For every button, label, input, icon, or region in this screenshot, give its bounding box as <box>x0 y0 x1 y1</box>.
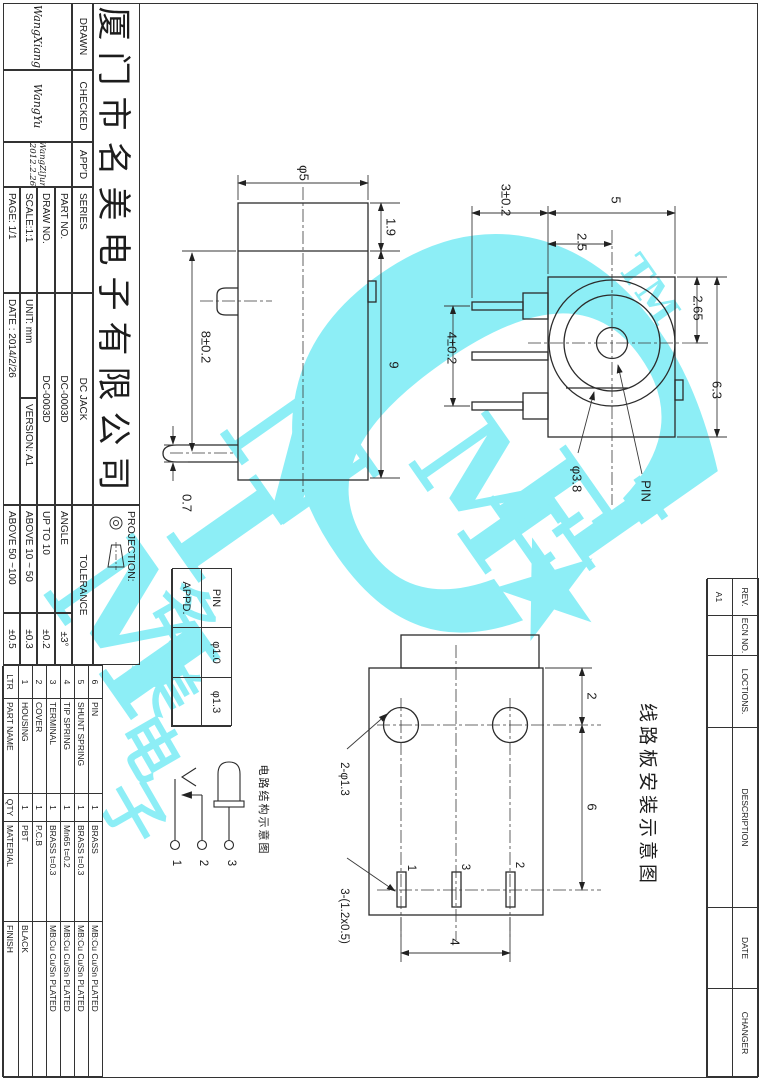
dim-6.3-label: 6.3 <box>710 381 725 399</box>
appd-signature-name: WangZiJun <box>38 142 48 187</box>
appd-row-cell <box>171 628 201 678</box>
description-label: DESCRIPTION <box>732 728 758 908</box>
part-ltr: 2 <box>32 666 46 699</box>
tolerance-value: ±3° <box>55 613 72 665</box>
dim-5-label: 5 <box>609 196 624 203</box>
slots-callout-label: 3-(1.2x0.5) <box>338 888 350 944</box>
date-label: DATE <box>732 908 758 989</box>
part-qty: 1 <box>32 794 46 822</box>
projection-cell: PROJECTION: <box>93 505 140 665</box>
parts-header-finish: FINISH <box>2 922 18 1077</box>
tolerance-range: ABOVE 10 ~ 50 <box>20 505 37 613</box>
pin-spec-table: PIN φ1.0 φ1.3 APPD. <box>172 568 232 726</box>
parts-header-name: PART NAME <box>2 699 18 794</box>
terminal-2-number: 2 <box>197 860 209 866</box>
part-qty: 1 <box>74 794 88 822</box>
appd-label: APP'D <box>72 142 93 187</box>
dim-2-label: 2 <box>585 692 600 699</box>
part-qty: 1 <box>18 794 32 822</box>
part-name: PIN <box>88 699 102 794</box>
terminal-1-number: 1 <box>170 860 182 866</box>
draw-no-label: DRAW NO. <box>37 187 55 293</box>
locations-label: LOCTIONS. <box>732 656 758 728</box>
parts-header-ltr: LTR <box>2 666 18 699</box>
locations-value <box>706 656 732 728</box>
dim-2.65-label: 2.65 <box>691 295 706 320</box>
part-ltr: 5 <box>74 666 88 699</box>
description-value <box>706 728 732 908</box>
rev-label: REV. <box>732 579 758 616</box>
appd-signature: WangZiJun 2012.2.26 <box>3 142 72 187</box>
circuit-schematic <box>171 762 245 850</box>
part-finish: MB:Cu Cu/Sn PLATED <box>60 922 74 1077</box>
dim-1.9-label: 1.9 <box>384 218 399 236</box>
side-view <box>163 203 376 480</box>
appd-row-cell <box>171 678 201 727</box>
pcb-view-centerlines <box>377 645 601 940</box>
part-name: TERMINAL <box>46 699 60 794</box>
side-view-centerlines <box>170 187 303 492</box>
parts-header-material: MATERIAL <box>2 822 18 922</box>
pin-spec-value: φ1.0 <box>201 628 231 678</box>
first-angle-projection-icon <box>107 511 125 575</box>
part-ltr: 4 <box>60 666 74 699</box>
checked-signature: WangYu <box>3 70 72 142</box>
company-name: 厦门市名美电子有限公司 <box>93 3 140 505</box>
part-qty: 1 <box>88 794 102 822</box>
part-name: COVER <box>32 699 46 794</box>
part-material: Mn65 t=0.2 <box>60 822 74 922</box>
changer-label: CHANGER <box>732 989 758 1078</box>
tolerance-header: TOLERANCE <box>72 505 93 665</box>
drawn-signature: WangXiang <box>3 3 72 70</box>
part-qty: 1 <box>46 794 60 822</box>
part-name: HOUSING <box>18 699 32 794</box>
part-no-label: PART NO. <box>55 187 72 293</box>
part-finish: MB:Cu Cu/Sn PLATED <box>46 922 60 1077</box>
unit-label: UNIT: mm <box>20 293 37 398</box>
slot-1-number: 1 <box>405 865 417 871</box>
rev-value: A1 <box>706 579 732 616</box>
tolerance-range: ABOVE 50 ~100 <box>3 505 20 613</box>
pin-spec-header: PIN <box>201 569 231 628</box>
pcb-view-dimensions <box>347 668 592 962</box>
appd-row-header: APPD. <box>171 569 201 628</box>
dim-phi3.8-label: φ3.8 <box>570 466 585 493</box>
part-finish <box>32 922 46 1077</box>
side-view-dimensions <box>164 175 400 481</box>
dim-4-tol-label: 4±0.2 <box>445 332 460 364</box>
date-value <box>706 908 732 989</box>
ecn-value <box>706 616 732 656</box>
checked-label: CHECKED <box>72 70 93 142</box>
part-material: P.C.B <box>32 822 46 922</box>
part-name: SHUNT SPRING <box>74 699 88 794</box>
series-label: SERIES <box>72 187 93 293</box>
version-label: VERSION: A1 <box>20 398 37 505</box>
part-no-value: DC-0003D <box>55 293 72 505</box>
tolerance-range: UP TO 10 <box>37 505 55 613</box>
dim-9-label: 9 <box>387 361 402 368</box>
dim-0.7-label: 0.7 <box>180 494 195 512</box>
part-ltr: 1 <box>18 666 32 699</box>
appd-signature-date: 2012.2.26 <box>28 142 38 187</box>
slot-3-number: 3 <box>459 864 471 870</box>
part-finish: MB:Cu Cu/Sn PLATED <box>74 922 88 1077</box>
scale-label: SCALE:1:1 <box>20 187 37 293</box>
part-ltr: 6 <box>88 666 102 699</box>
pin-callout-label: PIN <box>639 480 654 502</box>
date-label: DATE : 2014/2/26 <box>3 293 20 505</box>
dim-8-label: 8±0.2 <box>199 331 214 363</box>
series-value: DC JACK <box>72 293 93 505</box>
terminal-3-number: 3 <box>225 860 237 866</box>
dim-2.5-label: 2.5 <box>575 233 590 251</box>
dim-3-label: 3±0.2 <box>499 184 514 216</box>
page-label: PAGE: 1/1 <box>3 187 20 293</box>
slot-2-number: 2 <box>513 862 525 868</box>
tolerance-value: ±0.5 <box>3 613 20 665</box>
pin-spec-value: φ1.3 <box>201 678 231 727</box>
pcb-view-title: 线路板安装示意图 <box>636 703 663 887</box>
dim-6-label: 6 <box>585 803 600 810</box>
title-block: 厦门市名美电子有限公司 PROJECTION: DRAWN CHECKED AP… <box>3 3 140 665</box>
part-material: PBT <box>18 822 32 922</box>
part-name: TIP SPRING <box>60 699 74 794</box>
dim-4-label: 4 <box>448 938 463 945</box>
tolerance-range: ANGLE <box>55 505 72 613</box>
part-finish: BLACK <box>18 922 32 1077</box>
parts-table: 6 PIN 1 BRASS MB:Cu Cu/Sn PLATED 5 SHUNT… <box>3 665 103 1077</box>
part-ltr: 3 <box>46 666 60 699</box>
engineering-drawing-sheet: M I N C M E I TM ★ 名 美 电 子 <box>0 0 762 1079</box>
parts-header-qty: QTY <box>2 794 18 822</box>
tolerance-value: ±0.2 <box>37 613 55 665</box>
part-finish: MB:Cu Cu/Sn PLATED <box>88 922 102 1077</box>
part-material: BRASS t=0.3 <box>74 822 88 922</box>
part-material: BRASS t=0.3 <box>46 822 60 922</box>
draw-no-value: DC-0003D <box>37 293 55 505</box>
revision-table: REV. ECN NO. LOCTIONS. DESCRIPTION DATE … <box>707 578 759 1077</box>
part-material: BRASS <box>88 822 102 922</box>
holes-callout-label: 2-φ1.3 <box>338 762 350 796</box>
front-view <box>472 277 683 437</box>
circuit-schematic-title: 电路结构示意图 <box>256 765 272 856</box>
ecn-label: ECN NO. <box>732 616 758 656</box>
tolerance-value: ±0.3 <box>20 613 37 665</box>
dim-phi5-label: φ5 <box>297 165 312 181</box>
changer-value <box>706 989 732 1078</box>
part-qty: 1 <box>60 794 74 822</box>
drawn-label: DRAWN <box>72 3 93 70</box>
projection-label: PROJECTION: <box>125 511 137 582</box>
